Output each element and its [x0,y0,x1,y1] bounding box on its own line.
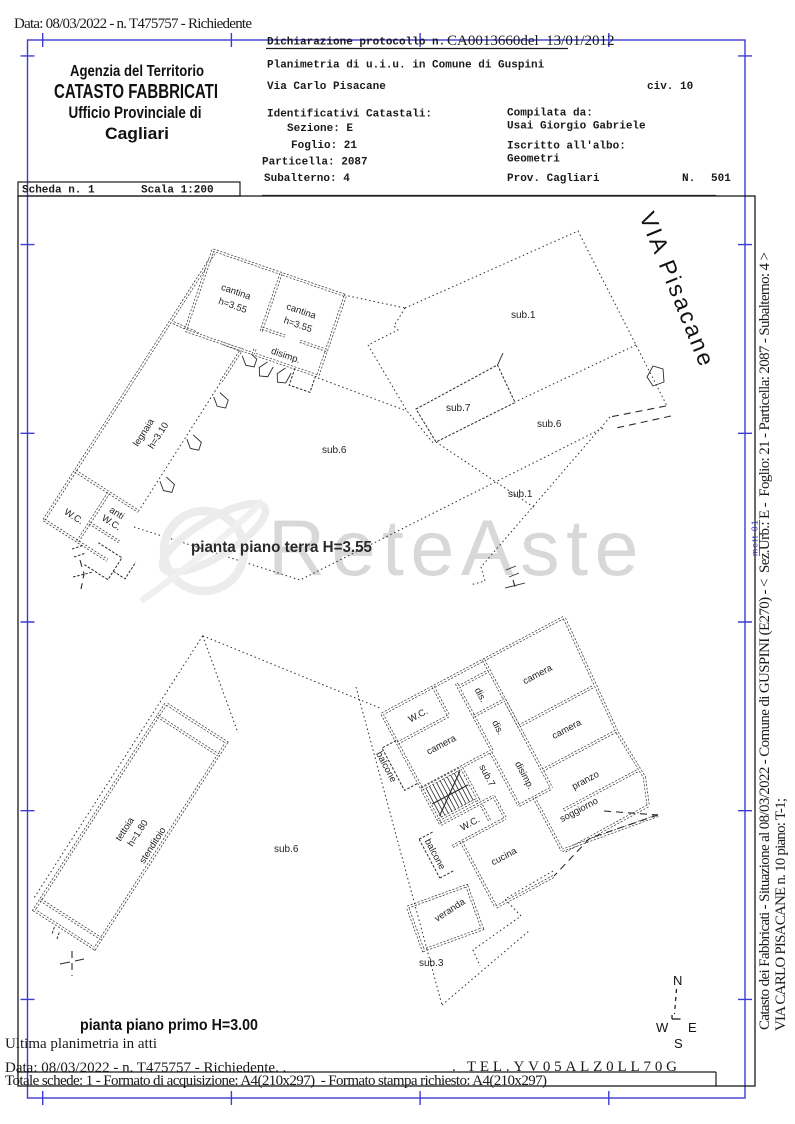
svg-text:sub.6: sub.6 [537,419,562,430]
svg-text:sub.3: sub.3 [419,958,444,969]
svg-text:S: S [674,1036,683,1051]
svg-text:Identificativi Catastali:: Identificativi Catastali: [267,109,432,121]
svg-text:pianta piano primo H=3.00: pianta piano primo H=3.00 [80,1017,258,1034]
svg-text:Ufficio Provinciale di: Ufficio Provinciale di [69,104,202,122]
svg-text:mett 01: mett 01 [750,519,760,556]
svg-text:sub.6: sub.6 [322,445,347,456]
svg-text:civ. 10: civ. 10 [647,81,693,93]
svg-text:E: E [688,1020,697,1035]
svg-text:Particella: 2087: Particella: 2087 [262,157,368,169]
svg-text:Dichiarazione protocollo n.: Dichiarazione protocollo n. [267,37,445,49]
svg-text:sub.1: sub.1 [508,489,533,500]
svg-text:Cagliari: Cagliari [105,124,169,143]
svg-text:Totale schede: 1 - Formato di: Totale schede: 1 - Formato di acquisizio… [5,1073,547,1089]
svg-text:Usai Giorgio Gabriele: Usai Giorgio Gabriele [507,121,646,133]
svg-text:Prov. Cagliari: Prov. Cagliari [507,173,600,185]
svg-text:Planimetria di u.i.u. in Comun: Planimetria di u.i.u. in Comune di Guspi… [267,60,545,72]
svg-text:Compilata da:: Compilata da: [507,108,593,120]
svg-text:CA0013660del 13/01/2012: CA0013660del 13/01/2012 [447,33,615,49]
svg-text:Scala 1:200: Scala 1:200 [141,185,214,197]
svg-text:sub.6: sub.6 [274,844,299,855]
svg-text:VIA CARLO PISACANE n. 10 piano: VIA CARLO PISACANE n. 10 piano: T-1; [773,798,789,1031]
svg-text:W: W [656,1020,669,1035]
svg-text:Sezione: E: Sezione: E [287,123,353,135]
svg-text:pianta piano terra H=3.55: pianta piano terra H=3.55 [191,539,372,556]
svg-text:Geometri: Geometri [507,154,560,166]
svg-text:Data: 08/03/2022 - n. T475757: Data: 08/03/2022 - n. T475757 - Richiede… [14,16,252,32]
svg-text:Via Carlo Pisacane: Via Carlo Pisacane [267,81,386,93]
svg-text:Catasto dei Fabbricati - Situa: Catasto dei Fabbricati - Situazione al 0… [757,252,773,1030]
svg-text:Scheda n. 1: Scheda n. 1 [22,185,95,197]
svg-text:sub.7: sub.7 [446,403,471,414]
svg-text:Subalterno: 4: Subalterno: 4 [264,173,350,185]
svg-text:Agenzia del Territorio: Agenzia del Territorio [70,63,204,80]
svg-text:Ultima planimetria in atti: Ultima planimetria in atti [5,1036,157,1052]
svg-text:N.: N. [682,173,695,185]
svg-text:sub.1: sub.1 [511,310,536,321]
svg-text:CATASTO FABBRICATI: CATASTO FABBRICATI [54,81,218,103]
svg-text:Foglio: 21: Foglio: 21 [291,140,357,152]
svg-text:501: 501 [711,173,731,185]
svg-text:Iscritto all'albo:: Iscritto all'albo: [507,141,626,153]
svg-text:N: N [673,973,682,988]
